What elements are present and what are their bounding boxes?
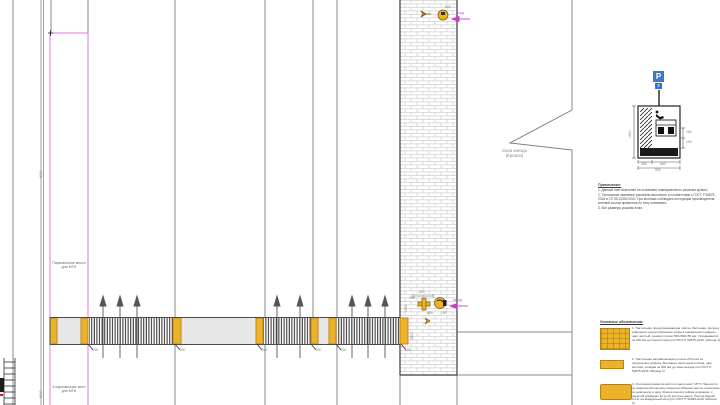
mgn-zone-label-top: Парковочные места для МГН [51,261,87,269]
legend-item: 3. Сплошная разметка жёлтого цвета мест … [598,383,720,405]
dim-label: 100 [409,297,415,301]
dim-label: 150 [686,131,692,135]
note-line: 3. Все размеры указаны в мм. [598,206,718,210]
entrance-label-top: вход [456,11,464,15]
red-mark [0,394,3,396]
note-line: 1. Данный лист выполнен на основании пла… [598,188,718,192]
tactile-rib-hatch [89,318,173,344]
dim-label: 1500 [629,130,633,138]
legend-title: Условные обозначения: [600,320,720,324]
corner-marker [48,30,53,36]
dim-label: 900 [655,169,661,173]
tick-label: 300 [180,349,185,353]
legend-swatch-guide-strip [600,360,624,369]
notes-title: Примечание: [598,183,718,187]
brick-wall [400,0,457,375]
dim-label: 1500 [411,332,415,340]
dim-label: 300 [641,163,647,167]
parking-sign: P [653,71,664,82]
dim-label: 100 [686,141,692,145]
tick-label: 300 [316,349,321,353]
tactile-paving-band [50,317,408,345]
mgn-zone-boundary [50,33,88,405]
dim-label: 500 [419,291,425,295]
legend-swatch-marking [600,384,632,400]
dim-label: 600 [660,163,666,167]
note-line: 2. Тактильные наземные указатели выполня… [598,193,718,205]
mgn-zone-label-bottom: 5 парковочных мест для МГН [51,385,87,393]
tick-label: 300 [406,349,411,353]
legend-item-text: 2. Тактильная направляющая полоса «Полос… [632,358,720,373]
legend-item-text: 3. Сплошная разметка жёлтого цвета мест … [632,383,720,405]
tick-label: 300 [341,349,346,353]
legend-swatch-tactile-tile [600,328,630,350]
dim-label: 600 [427,312,433,316]
parking-sign-plate: ♿ [655,83,662,89]
entrance-label-side: вход [454,298,462,302]
cad-drawing-sheet: Зона заезда (Кровля) Парковочные места д… [0,0,720,405]
legend-item: 1. Тактильная предупреждающая плитка. Бе… [598,327,720,353]
dim-label: 9000 [40,390,44,398]
dim-label: 6000 [40,170,44,178]
parking-sign-detail [632,90,685,170]
dim-label: 1500 [405,304,409,312]
notes-block: Примечание: 1. Данный лист выполнен на о… [598,183,718,211]
legend-item: 2. Тактильная направляющая полоса «Полос… [598,358,720,378]
dim-label: 500 [445,6,451,10]
section-base-strip [640,148,678,156]
legend-block: Условные обозначения: 1. Тактильная пред… [598,320,720,405]
zone-label: Зона заезда (Кровля) [457,148,572,158]
tick-label: 300 [262,349,267,353]
dim-label: 700 [441,312,447,316]
tactile-rib-hatch [263,318,311,344]
tick-label: 300 [93,349,98,353]
legend-item-text: 1. Тактильная предупреждающая плитка. Бе… [632,327,720,342]
